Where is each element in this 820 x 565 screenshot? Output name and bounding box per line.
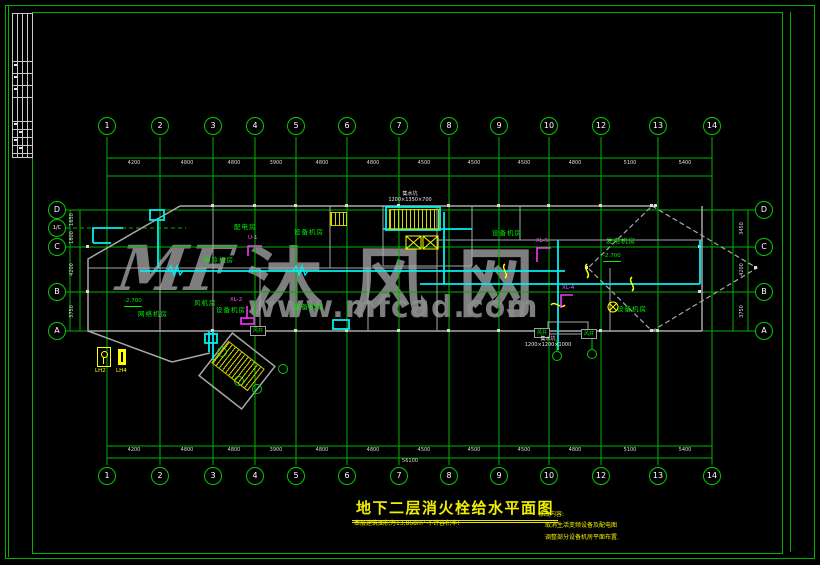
drawing-subtitle: 本层建筑面积为13,868m² 不计容积率! [354, 521, 460, 527]
room-label-network: 网络机房 [138, 311, 168, 318]
room-label-equipment-4: 设备机房 [617, 306, 647, 313]
axis-top-9: 9 [490, 117, 508, 135]
dim-top: 4800 [367, 161, 380, 166]
axis-bottom-9: 9 [490, 467, 508, 485]
dim-left: 4200 [70, 263, 75, 276]
dim-top: 4800 [181, 161, 194, 166]
axis-left-B: B [48, 283, 66, 301]
riser-label-xl4: XL-4 [562, 286, 574, 292]
sump-pit-size: 1200×1200×1000 [516, 342, 580, 348]
sump-pit-size: 1200×1350×700 [378, 197, 442, 203]
dim-bottom: 4500 [518, 448, 531, 453]
air-shaft-box: 风井 [581, 329, 597, 339]
dim-top: 4500 [518, 161, 531, 166]
axis-left-1C: 1/C [48, 219, 66, 237]
axis-top-8: 8 [440, 117, 458, 135]
dim-right: 3750 [740, 305, 745, 318]
riser-label-xl5: XL-5 [536, 239, 548, 245]
axis-top-4: 4 [246, 117, 264, 135]
axis-bottom-1: 1 [98, 467, 116, 485]
room-label-chiller: 制冷机房 [204, 257, 234, 264]
dim-bottom: 3900 [270, 448, 283, 453]
dim-bottom: 5400 [679, 448, 692, 453]
dim-top: 5100 [624, 161, 637, 166]
dim-bottom: 4500 [418, 448, 431, 453]
dim-top: 4500 [418, 161, 431, 166]
dim-left: 3750 [70, 305, 75, 318]
dim-left: 1650 [70, 213, 75, 226]
dim-top: 4200 [128, 161, 141, 166]
sump-pit-label-bottom: 集水坑 1200×1200×1000 [516, 336, 580, 348]
legend-label-lh2: LH2 [95, 369, 106, 375]
axis-grid-lines [66, 137, 755, 465]
axis-bottom-6: 6 [338, 467, 356, 485]
axis-top-5: 5 [287, 117, 305, 135]
axis-left-D: D [48, 201, 66, 219]
riser-label-xl2: XL-2 [230, 298, 242, 304]
hydrant-symbol-stem [103, 357, 104, 364]
dim-bottom: 5100 [624, 448, 637, 453]
riser-label-u1: U-1 [248, 236, 258, 242]
legend-label-lh4: LH4 [116, 369, 127, 375]
room-label-equipment-3: 设备机房 [492, 230, 522, 237]
dim-bottom-total: 56100 [402, 459, 418, 464]
axis-right-D: D [755, 201, 773, 219]
dim-top: 4800 [228, 161, 241, 166]
stair-hatch-small [330, 212, 347, 226]
cad-drawing-canvas: MF 沐风网 www.mfcad.com [0, 0, 820, 565]
dim-left: 1800 [70, 231, 75, 244]
axis-top-1: 1 [98, 117, 116, 135]
riser-pipes [241, 246, 573, 324]
revision-notes: 修改内容: 取消生活变频设备及配电图 调整部分设备机房平面布置. [538, 509, 619, 543]
dim-top: 3900 [270, 161, 283, 166]
dim-bottom: 4800 [228, 448, 241, 453]
dim-bottom: 4500 [468, 448, 481, 453]
axis-right-B: B [755, 283, 773, 301]
hydrant-symbol-lh2 [97, 347, 111, 367]
dim-right: 3450 [740, 222, 745, 235]
sump-pit-label-top: 集水坑 1200×1350×700 [378, 191, 442, 203]
axis-left-A: A [48, 322, 66, 340]
dim-top: 4500 [468, 161, 481, 166]
axis-top-7: 7 [390, 117, 408, 135]
room-label-equipment-2: 设备机房 [294, 229, 324, 236]
axis-bottom-5: 5 [287, 467, 305, 485]
axis-top-10: 10 [540, 117, 558, 135]
dim-top: 5400 [679, 161, 692, 166]
revision-note-line: 调整部分设备机房平面布置. [545, 532, 619, 543]
room-label-generator: 发电机房 [606, 238, 636, 245]
elevation-label: -2.700 [124, 299, 142, 307]
room-label-power-dist: 配电房 [234, 224, 257, 231]
dim-bottom: 4800 [569, 448, 582, 453]
hydrant-symbol-lh4 [118, 349, 126, 365]
hydrant-symbol-slot [121, 352, 123, 362]
room-label-equipment-5: 设备机房 [294, 304, 324, 311]
axis-bottom-14: 14 [703, 467, 721, 485]
axis-bottom-2: 2 [151, 467, 169, 485]
dim-bottom: 4800 [181, 448, 194, 453]
stair-hatch-main [389, 209, 439, 230]
revision-notes-heading: 修改内容: [538, 509, 619, 520]
dim-bottom: 4200 [128, 448, 141, 453]
dim-bottom: 4800 [367, 448, 380, 453]
axis-bottom-4: 4 [246, 467, 264, 485]
axis-bottom-3: 3 [204, 467, 222, 485]
room-label-equipment-1: 设备机房 [216, 307, 246, 314]
dim-bottom: 4800 [316, 448, 329, 453]
axis-top-14: 14 [703, 117, 721, 135]
axis-bottom-8: 8 [440, 467, 458, 485]
room-label-fan: 风机房 [194, 300, 217, 307]
axis-top-12: 12 [592, 117, 610, 135]
axis-left-C: C [48, 238, 66, 256]
elevation-label: -2.700 [603, 254, 621, 262]
axis-top-6: 6 [338, 117, 356, 135]
dim-top: 4800 [569, 161, 582, 166]
revision-note-line: 取消生活变频设备及配电图 [545, 520, 619, 531]
axis-top-3: 3 [204, 117, 222, 135]
axis-top-13: 13 [649, 117, 667, 135]
dim-right: 4200 [740, 263, 745, 276]
axis-right-A: A [755, 322, 773, 340]
axis-bottom-7: 7 [390, 467, 408, 485]
dim-top: 4800 [316, 161, 329, 166]
axis-bottom-12: 12 [592, 467, 610, 485]
air-shaft-box: 风井 [250, 326, 266, 336]
axis-top-2: 2 [151, 117, 169, 135]
axis-bottom-10: 10 [540, 467, 558, 485]
axis-right-C: C [755, 238, 773, 256]
plan-linework [0, 0, 820, 565]
axis-bottom-13: 13 [649, 467, 667, 485]
